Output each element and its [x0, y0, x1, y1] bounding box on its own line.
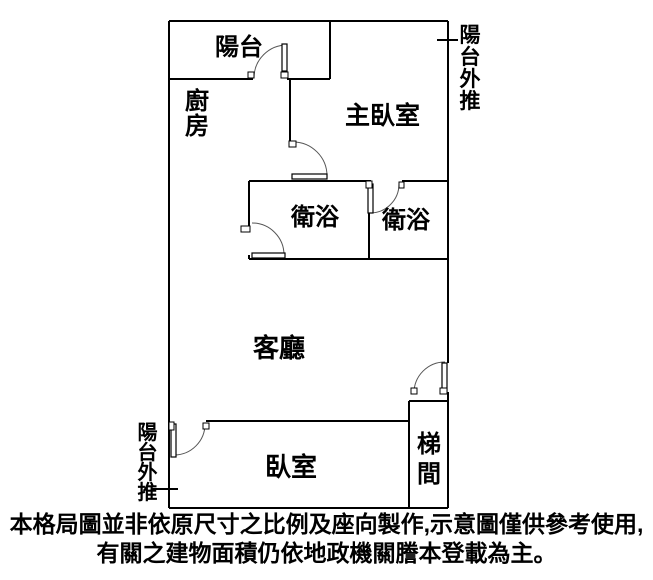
- disclaimer-line-2: 有關之建物面積仍依地政機關謄本登載為主。: [0, 541, 653, 566]
- bathroom-right-door-jamb-marker: [399, 182, 404, 188]
- interior-walls: [169, 21, 448, 508]
- disclaimer-line-1: 本格局圖並非依原尺寸之比例及座向製作,示意圖僅供參考使用,: [0, 512, 653, 537]
- balcony-door-jamb-marker: [248, 72, 254, 78]
- bedroom-door-arc: [174, 424, 205, 455]
- bedroom-door-jamb-marker: [203, 423, 209, 429]
- stairwell-label: 梯間: [416, 430, 442, 490]
- balcony-door-leaf: [282, 44, 287, 71]
- kitchen-label: 廚房: [184, 89, 210, 139]
- entry-door-jamb-marker: [411, 388, 417, 394]
- kitchen-door-arc: [293, 142, 327, 176]
- bathroom-left-door-leaf: [252, 253, 285, 258]
- kitchen-door-jamb-marker: [289, 141, 296, 147]
- bathroom-left-door-arc: [252, 223, 284, 255]
- kitchen-door-leaf: [292, 174, 327, 179]
- floorplan-canvas: [0, 0, 653, 580]
- balcony-extension-annotation-top-right: 陽台外推: [459, 25, 481, 113]
- bathroom-left-door-jamb-marker: [241, 226, 250, 232]
- balcony-door-hinge-marker: [281, 72, 288, 78]
- living-room-label: 客廳: [253, 335, 305, 361]
- bathroom-left-label: 衛浴: [291, 206, 339, 230]
- balcony-extension-annotation-bottom-left: 陽台外推: [137, 423, 158, 503]
- bathroom-right-label: 衛浴: [382, 209, 430, 233]
- master-bedroom-label: 主臥室: [345, 104, 420, 129]
- balcony-label: 陽台: [215, 36, 263, 60]
- bedroom-label: 臥室: [265, 454, 317, 480]
- bedroom-door-hinge-marker: [169, 422, 174, 430]
- bathroom-right-door-hinge-marker: [366, 181, 372, 188]
- floorplan-page: 陽台 廚房 主臥室 衛浴 衛浴 客廳 臥室 梯間 陽台外推 陽台外推 本格局圖並…: [0, 0, 653, 580]
- exterior-walls: [169, 21, 448, 508]
- entry-door-hinge-marker: [440, 388, 447, 394]
